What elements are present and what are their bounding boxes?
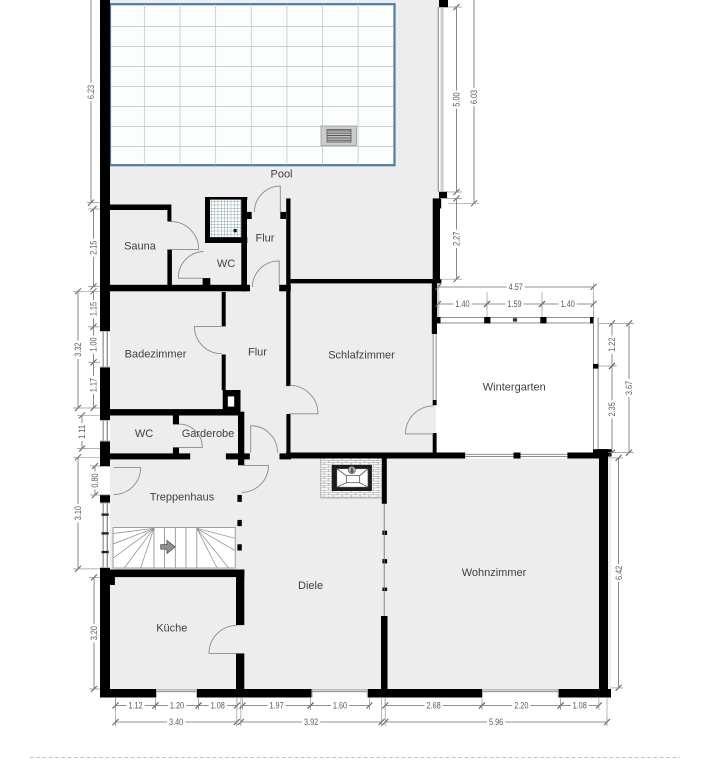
svg-text:1.59: 1.59 [507,299,521,309]
svg-text:1.17: 1.17 [89,378,99,392]
svg-text:1.40: 1.40 [455,299,469,309]
svg-text:Pool: Pool [270,169,292,181]
svg-text:1.15: 1.15 [89,302,99,316]
svg-text:1.60: 1.60 [333,701,347,711]
svg-text:Wohnzimmer: Wohnzimmer [462,567,527,579]
svg-text:0.80: 0.80 [90,473,100,487]
svg-text:Wintergarten: Wintergarten [483,382,546,394]
svg-text:1.20: 1.20 [170,701,184,711]
svg-text:Küche: Küche [156,622,187,634]
svg-text:1.00: 1.00 [89,337,99,351]
svg-text:3.32: 3.32 [73,343,83,357]
svg-text:1.97: 1.97 [269,701,283,711]
svg-text:3.40: 3.40 [169,717,183,727]
svg-text:2.35: 2.35 [607,402,617,416]
svg-text:WC: WC [217,258,235,270]
svg-text:1.08: 1.08 [211,701,225,711]
svg-text:6.03: 6.03 [469,90,479,104]
svg-text:6.42: 6.42 [614,566,624,580]
svg-text:1.11: 1.11 [77,425,87,439]
svg-text:Flur: Flur [248,346,267,358]
svg-text:WC: WC [135,428,153,440]
svg-text:2.15: 2.15 [89,241,99,255]
svg-text:1.40: 1.40 [561,299,575,309]
svg-text:3.92: 3.92 [304,717,318,727]
svg-text:Flur: Flur [256,233,275,245]
svg-text:3.20: 3.20 [89,626,99,640]
svg-text:5.96: 5.96 [489,717,503,727]
svg-text:5.00: 5.00 [452,92,462,106]
svg-text:4.57: 4.57 [509,282,523,292]
svg-text:2.20: 2.20 [514,701,528,711]
svg-text:1.22: 1.22 [607,338,617,352]
svg-text:Diele: Diele [298,580,323,592]
svg-text:Treppenhaus: Treppenhaus [150,491,215,503]
svg-text:Garderobe: Garderobe [182,428,235,440]
svg-text:6.23: 6.23 [86,85,96,99]
svg-text:Sauna: Sauna [124,241,157,253]
svg-text:1.08: 1.08 [573,701,587,711]
svg-text:3.10: 3.10 [73,506,83,520]
svg-text:Schlafzimmer: Schlafzimmer [328,350,395,362]
svg-text:Badezimmer: Badezimmer [125,348,187,360]
svg-text:3.67: 3.67 [624,381,634,395]
svg-text:2.68: 2.68 [427,701,441,711]
svg-text:1.12: 1.12 [128,701,142,711]
svg-text:2.27: 2.27 [452,232,462,246]
